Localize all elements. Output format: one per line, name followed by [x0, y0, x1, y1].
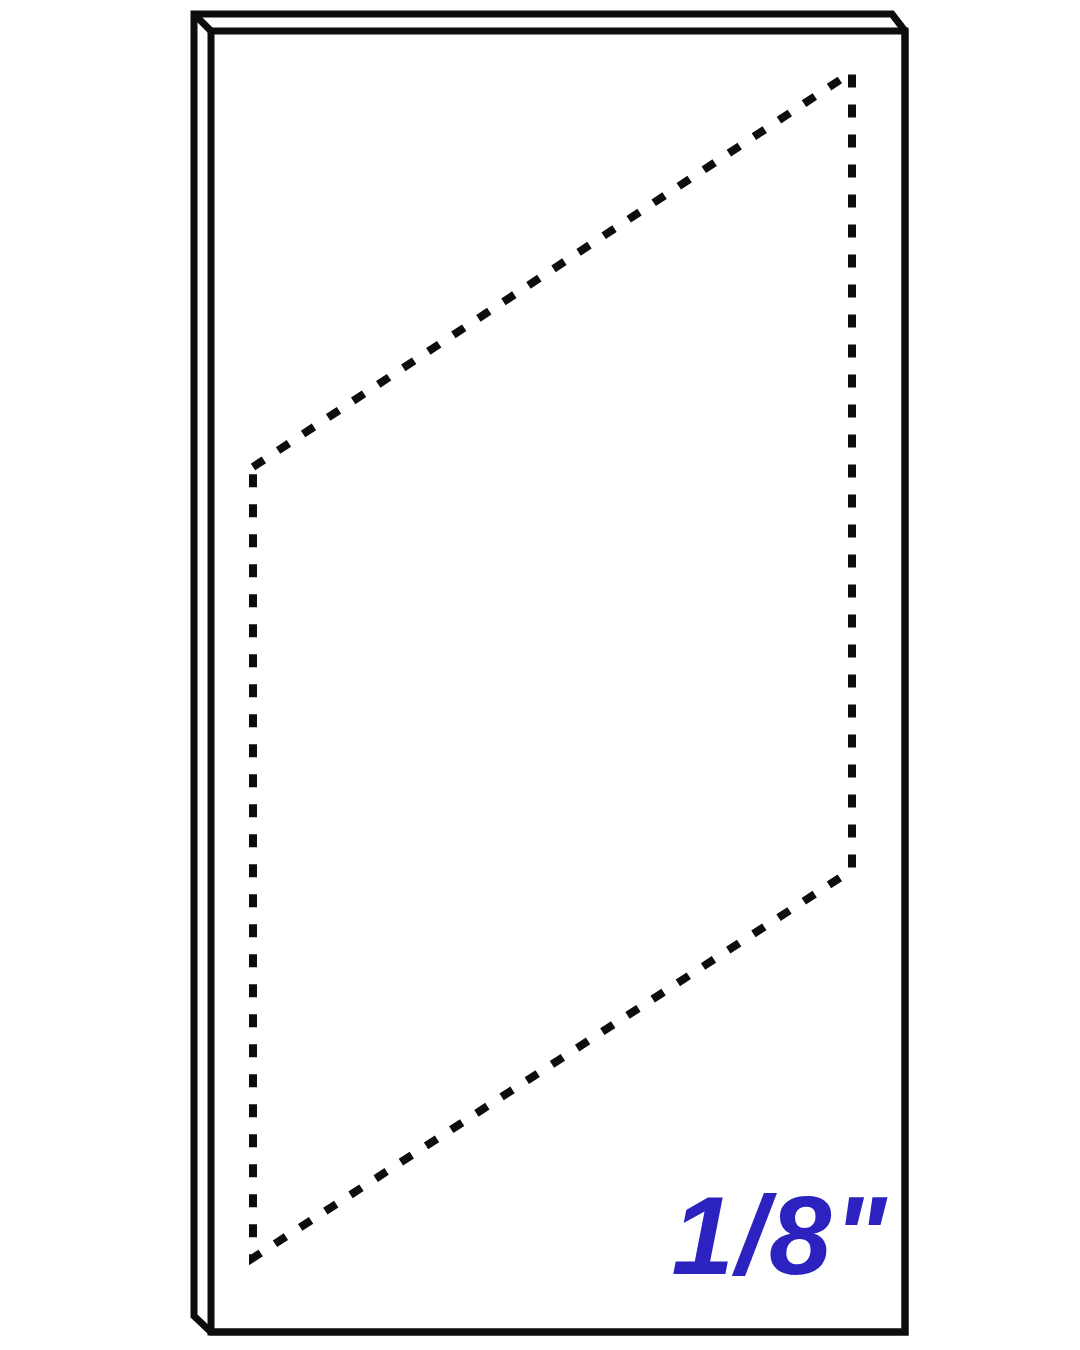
diagram-canvas: 1/8"	[0, 0, 1080, 1350]
panel-thickness-diagram	[0, 0, 1080, 1350]
panel-silhouette-outline	[194, 14, 905, 1332]
thickness-label: 1/8"	[640, 1180, 920, 1292]
